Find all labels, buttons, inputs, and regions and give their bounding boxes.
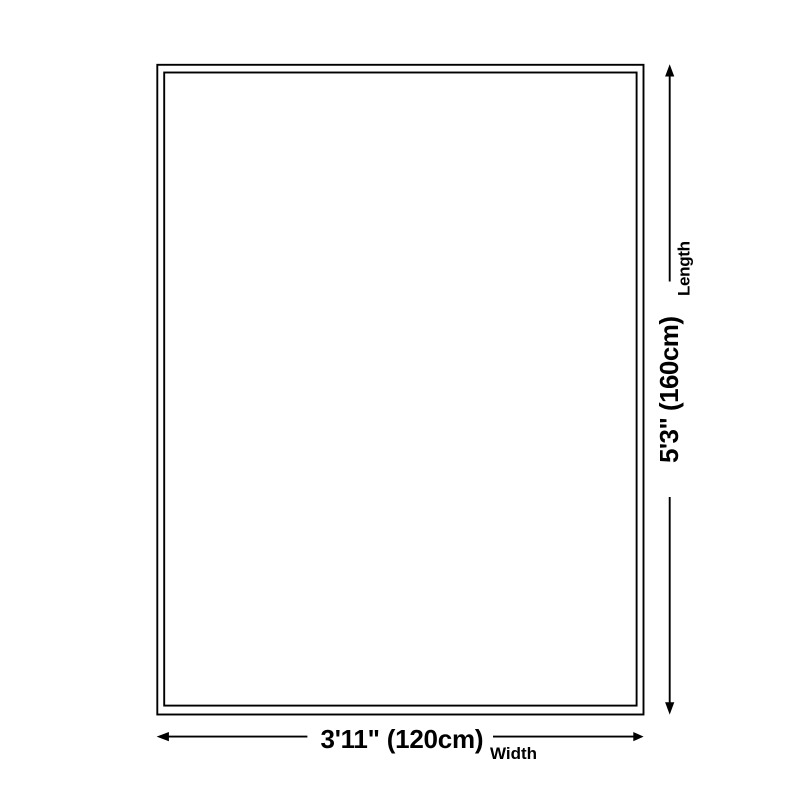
svg-text:Length: Length — [675, 241, 694, 296]
svg-text:Width: Width — [490, 744, 537, 763]
svg-text:3'11" (120cm): 3'11" (120cm) — [321, 724, 484, 754]
svg-text:5'3" (160cm): 5'3" (160cm) — [654, 316, 684, 463]
